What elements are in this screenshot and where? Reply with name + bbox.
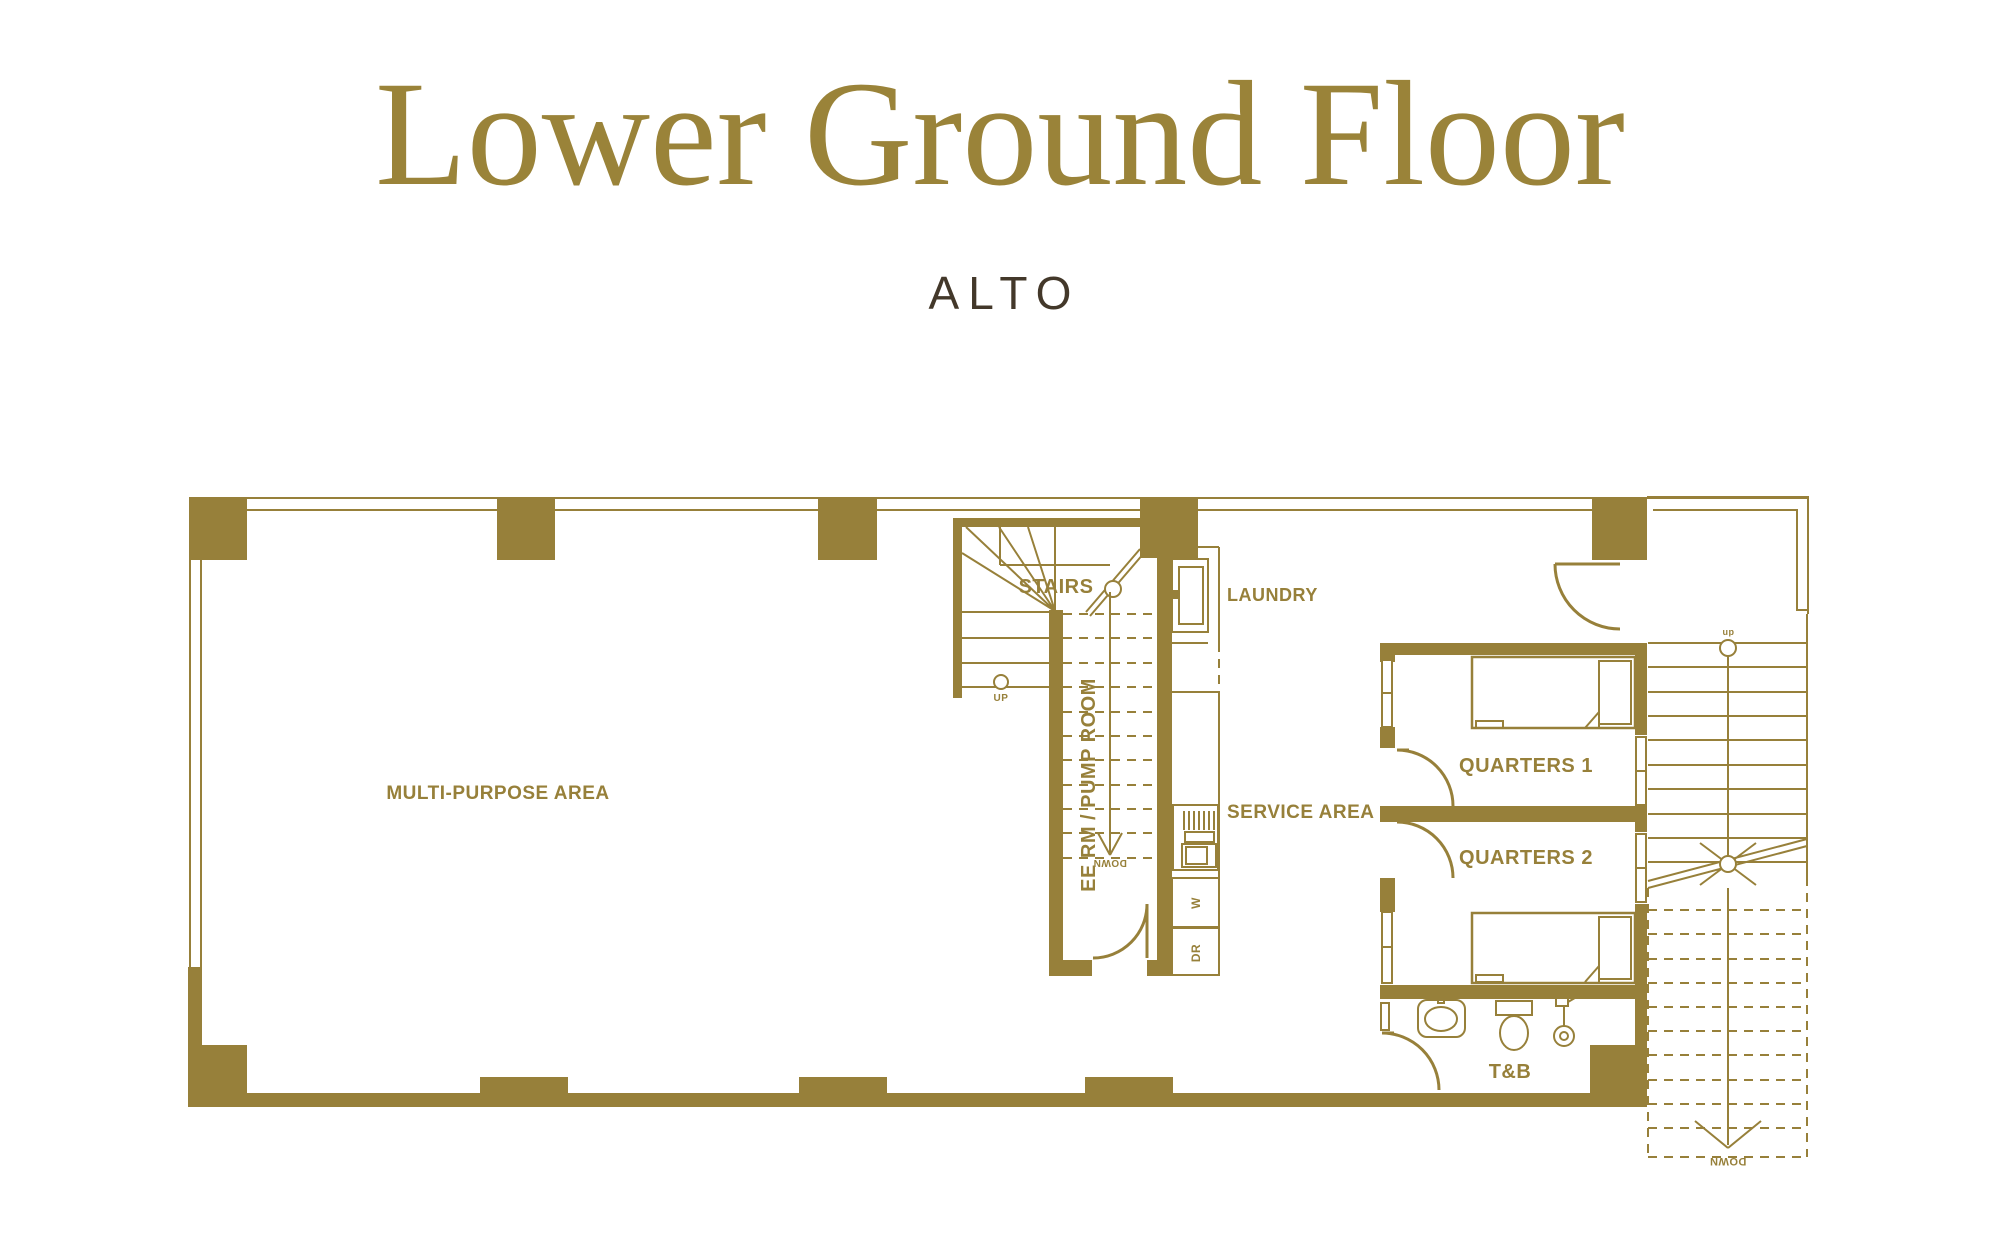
- down-label-right: DOWN: [1710, 1155, 1747, 1167]
- column: [1592, 497, 1647, 560]
- bed-quarters1: [1472, 657, 1635, 728]
- column: [1140, 497, 1198, 558]
- counter-item-inner: [1186, 847, 1207, 864]
- wall-jamb: [1380, 878, 1395, 912]
- stair-top-wall: [953, 518, 1140, 527]
- stairs-label: STAIRS: [1019, 576, 1094, 598]
- window: [1381, 1003, 1389, 1030]
- shower-drain: [1554, 1026, 1574, 1046]
- left-wall-solid: [188, 967, 202, 1047]
- right-wall-segment: [1635, 904, 1647, 1045]
- tb-label: T&B: [1489, 1061, 1532, 1083]
- counter-hatching: [1184, 811, 1214, 830]
- dryer-label: DR: [1189, 944, 1203, 962]
- toilet-bowl: [1500, 1016, 1528, 1050]
- winder-fan-rays: [962, 527, 1055, 611]
- break-circle: [1720, 856, 1736, 872]
- floor-plan-page: Lower Ground Floor ALTO: [0, 0, 2000, 1252]
- bed-quarters2: [1472, 913, 1635, 983]
- pump-room-right-wall: [1157, 558, 1172, 967]
- up-marker-circle: [994, 675, 1008, 689]
- parapet-outline: [1647, 497, 1808, 614]
- pump-room-door: [1093, 904, 1147, 958]
- service-area-label: SERVICE AREA: [1227, 802, 1374, 823]
- up-label: UP: [994, 693, 1009, 704]
- stair-start-circle: [1720, 640, 1736, 656]
- quarters1-top-wall: [1380, 643, 1637, 655]
- service-counter: [1173, 805, 1218, 870]
- pump-room-left-wall: [1049, 610, 1063, 976]
- corner-column: [188, 1045, 247, 1093]
- column-bump: [799, 1077, 887, 1093]
- quarters2-door: [1397, 822, 1453, 878]
- bottom-wall: [188, 1093, 1647, 1107]
- column: [818, 497, 877, 560]
- hall-door: [1555, 564, 1620, 629]
- shower-head: [1556, 995, 1580, 1026]
- quarters2-label: QUARTERS 2: [1459, 847, 1593, 869]
- toilet-tank: [1496, 1001, 1532, 1015]
- quarters1-door: [1397, 750, 1453, 806]
- laundry-service-strip: LAUNDRY SERVICE AREA W DR: [1166, 547, 1374, 975]
- washer-laundry-inner: [1179, 567, 1203, 624]
- counter-item: [1185, 832, 1214, 842]
- floor-plan-drawing: UP DOWN STAIRS EE RM / PUMP ROOM LAUNDRY: [0, 0, 2000, 1252]
- quarters2-tb-divider-wall: [1380, 985, 1647, 999]
- rail-post-circle: [1105, 581, 1121, 597]
- tb-corner-block: [1590, 1045, 1647, 1107]
- wall-jamb: [1380, 727, 1395, 748]
- pump-room-lower-stair: DOWN STAIRS EE RM / PUMP ROOM: [1019, 576, 1157, 958]
- shower-drain-center: [1560, 1032, 1568, 1040]
- dn-marker: dn: [1722, 628, 1734, 638]
- sink-basin: [1425, 1007, 1457, 1031]
- room-labels: MULTI-PURPOSE AREA QUARTERS 1 QUARTERS 2…: [386, 755, 1593, 1083]
- quarters-divider-wall: [1380, 806, 1647, 822]
- bathroom-fixtures: [1418, 994, 1580, 1050]
- pump-room-label: EE RM / PUMP ROOM: [1078, 678, 1100, 892]
- multi-purpose-label: MULTI-PURPOSE AREA: [386, 783, 609, 804]
- right-wall-segment: [1635, 643, 1647, 735]
- down-direction-line: [1695, 888, 1761, 1148]
- pump-room-bottom-jamb: [1147, 960, 1172, 976]
- column-bump: [1085, 1077, 1173, 1093]
- laundry-label: LAUNDRY: [1227, 585, 1318, 605]
- right-wall-segment: [1635, 806, 1647, 832]
- stair-left-wall: [953, 518, 962, 698]
- washer-label: W: [1189, 897, 1203, 909]
- door-knob-tick: [1166, 590, 1178, 599]
- pump-room-bottom-wall: [1049, 960, 1092, 976]
- left-wall-lines: [190, 560, 201, 967]
- right-staircase: dn DOWN: [1648, 614, 1807, 1167]
- column: [189, 497, 247, 560]
- column: [497, 497, 555, 560]
- quarters1-label: QUARTERS 1: [1459, 755, 1593, 777]
- column-bump: [480, 1077, 568, 1093]
- tb-door: [1382, 1033, 1439, 1090]
